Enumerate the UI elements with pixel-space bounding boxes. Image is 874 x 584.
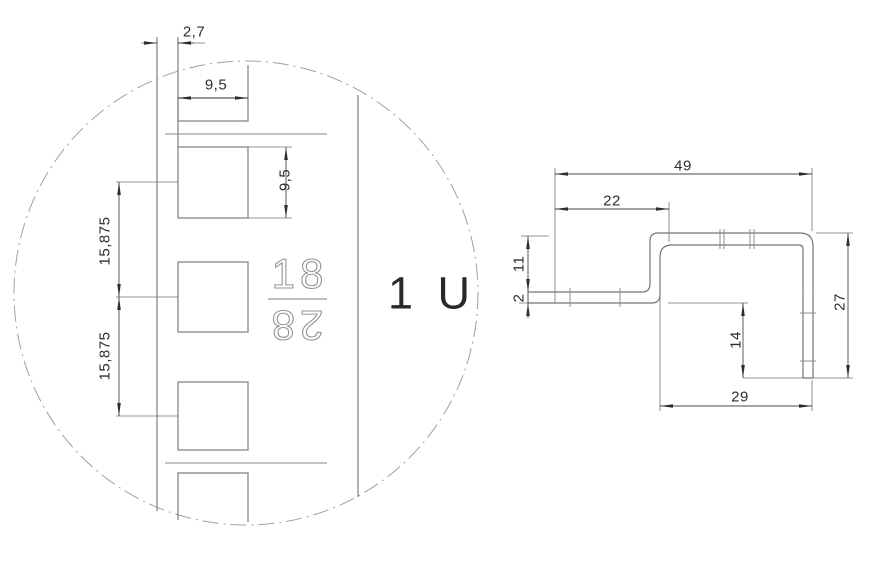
dim-label-hole-pitch-upper: 15,875 xyxy=(98,217,113,266)
dim-label-thickness: 2 xyxy=(512,294,527,303)
detail-dimension-lines xyxy=(119,43,286,416)
rack-unit-label: 1 U xyxy=(388,271,476,316)
dim-label-leg-depth: 14 xyxy=(729,331,744,349)
dim-label-left-height: 11 xyxy=(512,256,527,273)
dim-label-opening-width: 29 xyxy=(731,390,749,405)
dim-label-hole-height: 9,5 xyxy=(278,169,293,191)
dim-label-rail-offset: 2,7 xyxy=(183,25,205,40)
dim-label-hole-width: 9,5 xyxy=(205,78,227,93)
dim-label-flange-length: 22 xyxy=(603,194,621,209)
dim-label-overall-width: 49 xyxy=(674,159,692,174)
rail-marking-top: 18 xyxy=(272,253,329,295)
rail-marking-bottom: 28 xyxy=(267,304,324,346)
profile-dimension-lines xyxy=(528,174,848,406)
profile-break-marks xyxy=(570,229,816,361)
dim-label-right-height: 27 xyxy=(833,293,848,311)
bracket-profile-outline xyxy=(528,233,813,378)
technical-drawing-page: 2,7 9,5 9,5 15,875 15,875 1 U 18 28 49 2… xyxy=(0,0,874,584)
dim-label-hole-pitch-lower: 15,875 xyxy=(98,332,113,381)
detail-extension-lines xyxy=(116,43,292,416)
